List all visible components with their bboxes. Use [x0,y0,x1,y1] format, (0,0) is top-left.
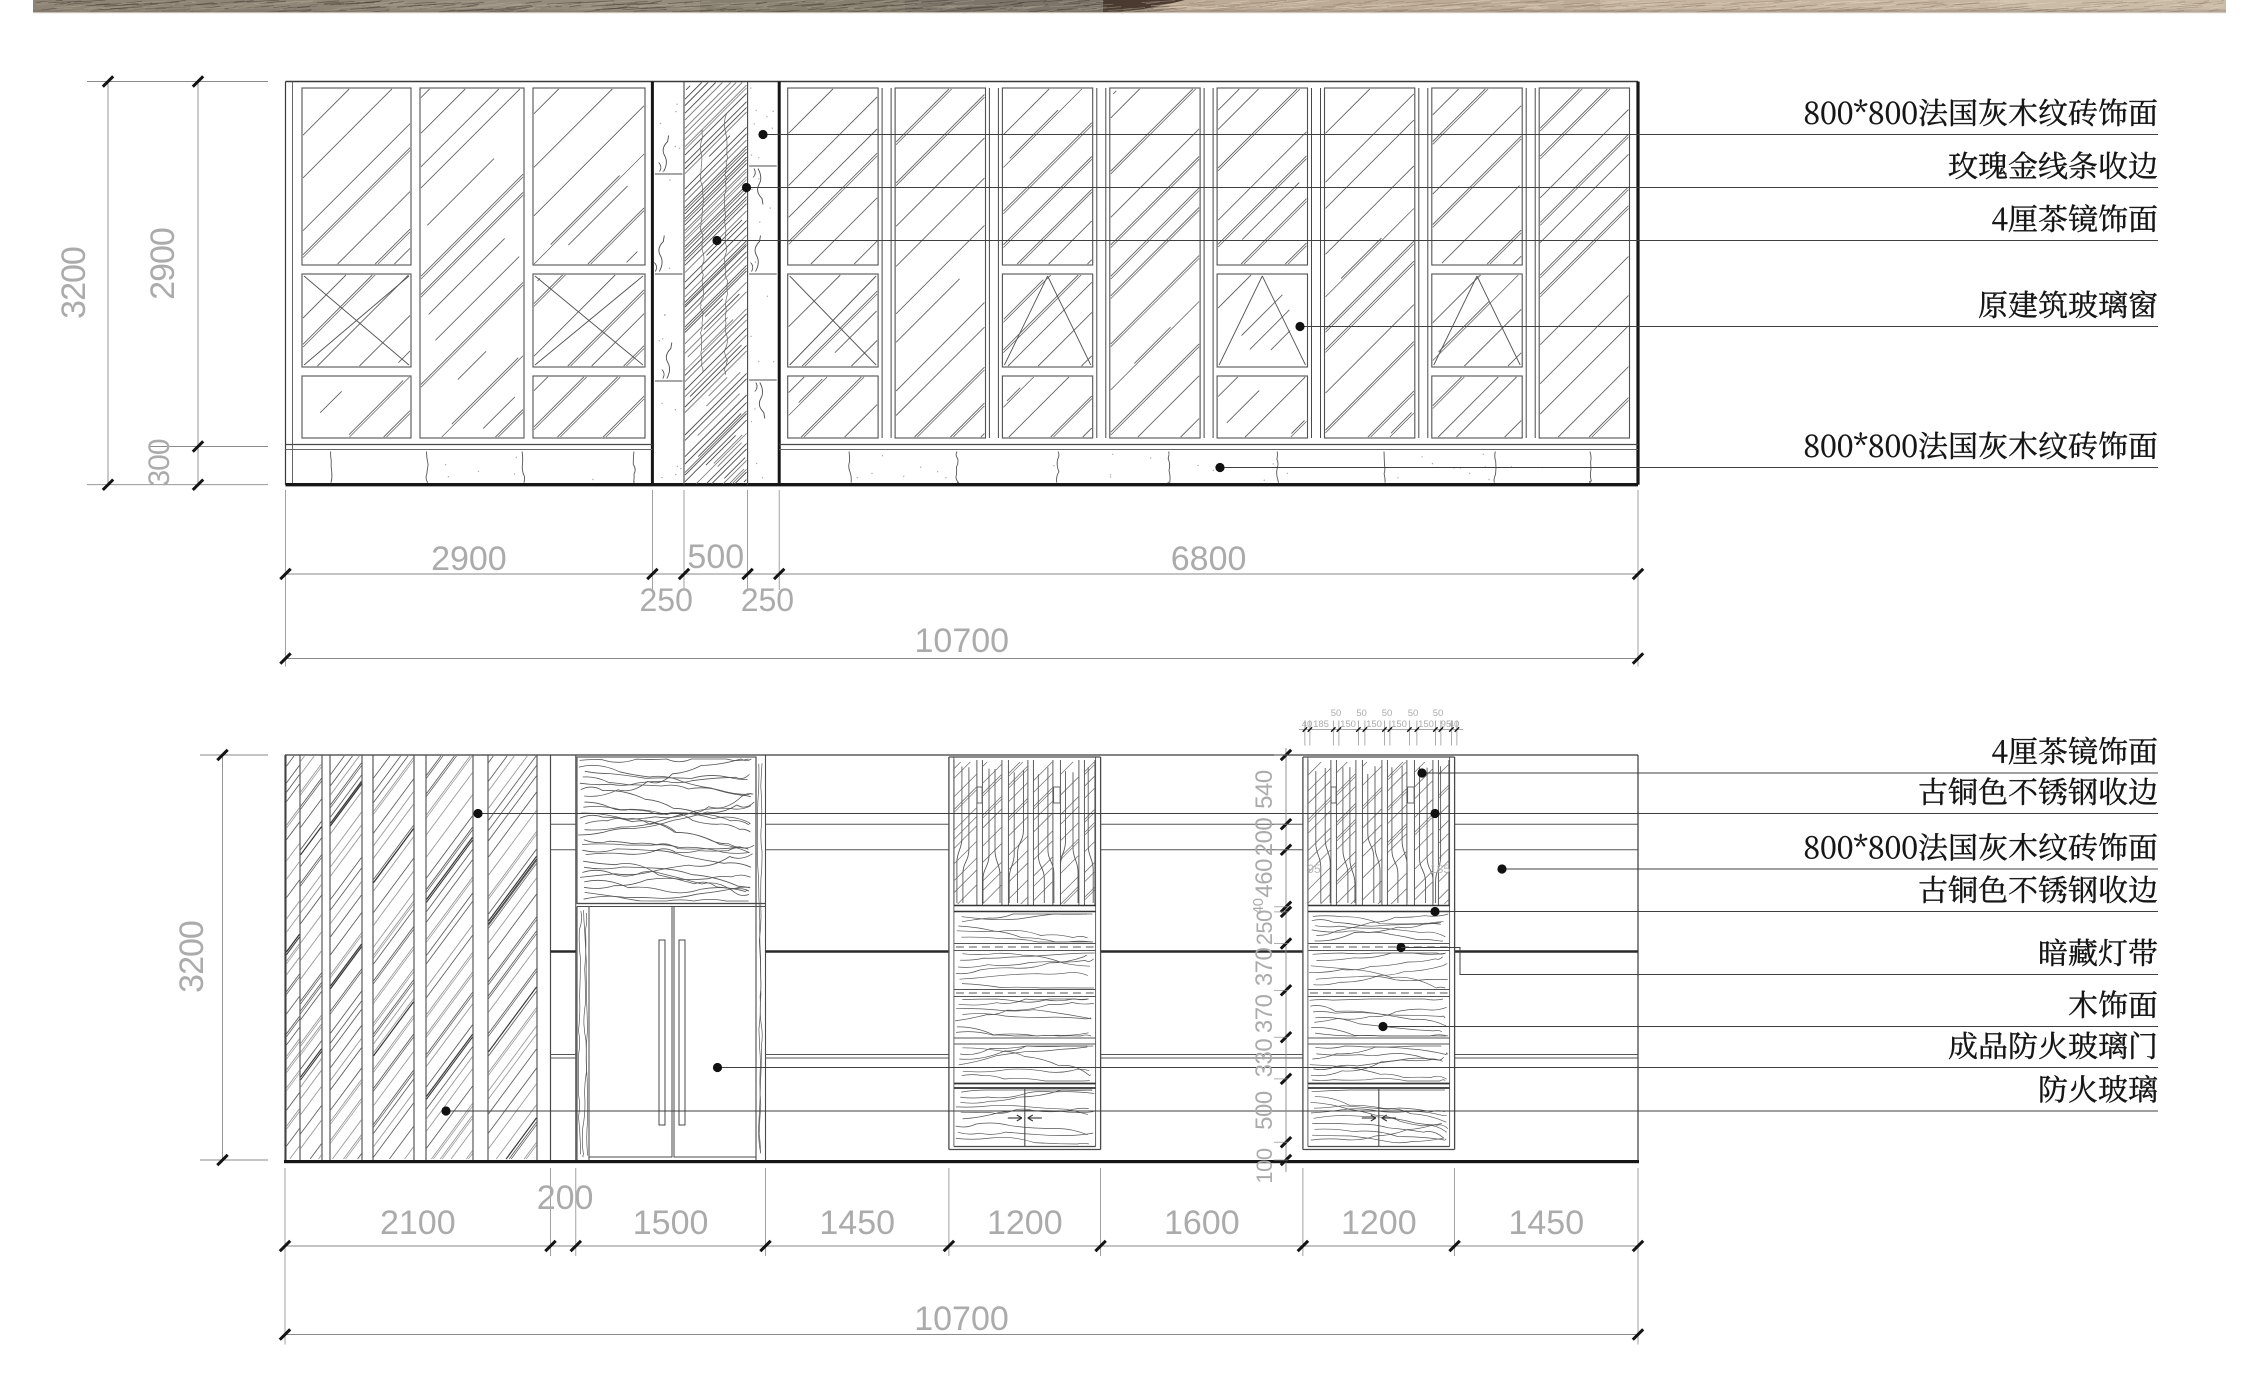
svg-text:1500: 1500 [633,1204,709,1242]
svg-text:250: 250 [640,582,693,618]
svg-text:300: 300 [143,439,176,486]
svg-text:1450: 1450 [819,1204,895,1242]
svg-text:95: 95 [1307,862,1321,876]
svg-text:2100: 2100 [380,1204,456,1242]
svg-text:2900: 2900 [431,540,507,578]
svg-text:500: 500 [1251,1091,1278,1130]
svg-text:370: 370 [1251,947,1278,986]
svg-text:10700: 10700 [914,1300,1009,1338]
svg-text:50: 50 [1433,708,1444,719]
svg-text:50: 50 [1382,708,1393,719]
svg-text:50: 50 [1408,708,1419,719]
svg-text:185: 185 [1313,719,1329,730]
svg-text:3200: 3200 [173,921,211,993]
svg-text:185: 185 [1430,862,1450,876]
svg-text:6800: 6800 [1171,540,1247,578]
svg-text:2900: 2900 [144,228,182,300]
svg-text:200: 200 [1251,818,1278,857]
svg-text:150: 150 [1366,719,1382,730]
svg-text:1200: 1200 [1341,1204,1417,1242]
svg-text:200: 200 [537,1179,594,1217]
svg-text:1600: 1600 [1164,1204,1240,1242]
svg-text:100: 100 [1252,1148,1277,1183]
svg-text:40: 40 [1302,719,1313,730]
svg-text:370: 370 [1251,994,1278,1033]
svg-text:1200: 1200 [987,1204,1063,1242]
svg-text:150: 150 [1391,719,1407,730]
svg-text:500: 500 [687,538,744,576]
svg-text:150: 150 [1418,719,1434,730]
svg-text:1450: 1450 [1508,1204,1584,1242]
svg-text:40: 40 [1449,719,1460,730]
svg-text:540: 540 [1251,770,1278,809]
svg-text:3200: 3200 [55,247,93,319]
svg-text:250: 250 [741,582,794,618]
svg-text:10700: 10700 [915,622,1010,660]
svg-text:330: 330 [1251,1039,1278,1078]
svg-text:250: 250 [1252,910,1277,945]
svg-text:150: 150 [1340,719,1356,730]
svg-text:50: 50 [1356,708,1367,719]
svg-text:460: 460 [1251,859,1278,898]
svg-text:50: 50 [1331,708,1342,719]
